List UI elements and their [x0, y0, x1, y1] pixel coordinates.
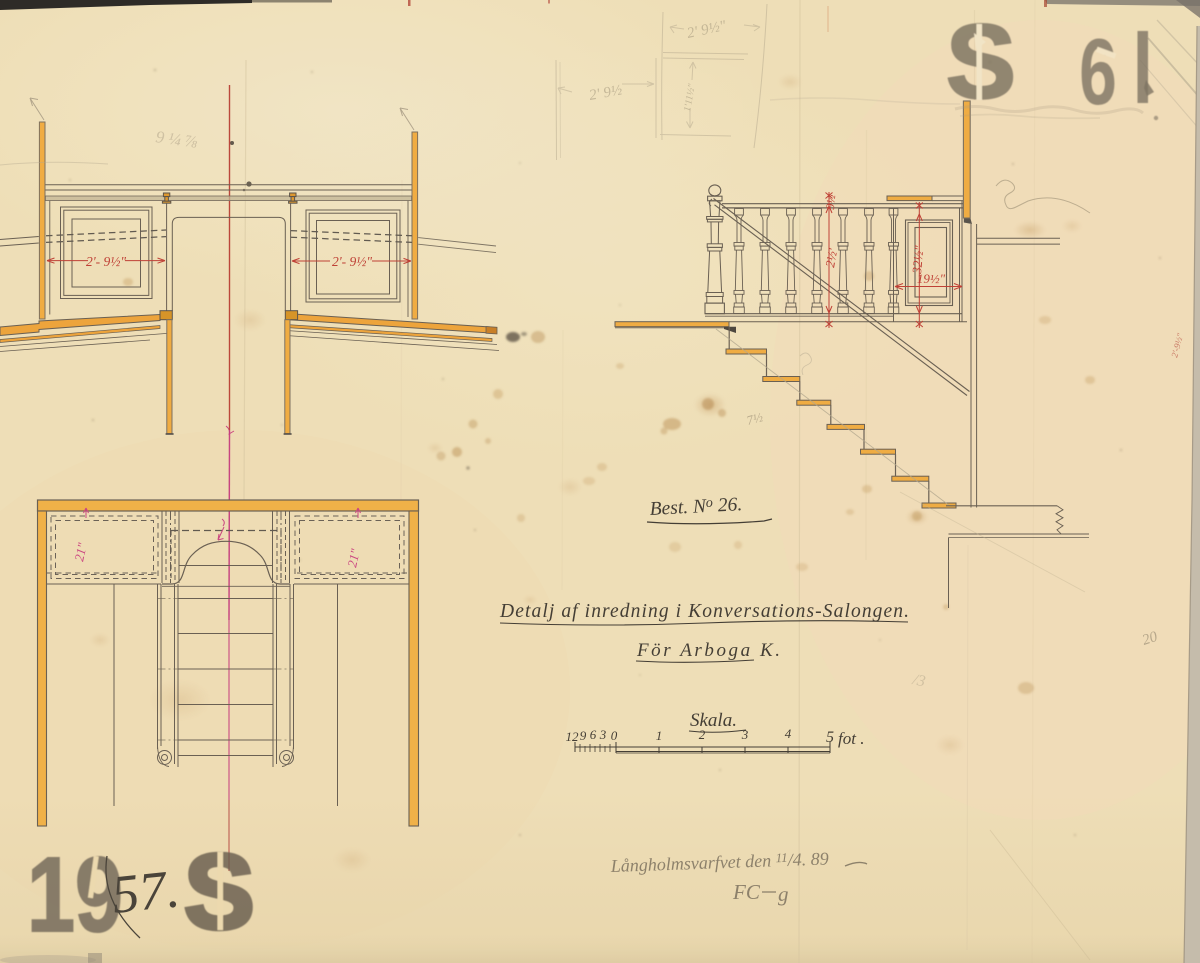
svg-text:2'- 9½": 2'- 9½": [332, 254, 372, 269]
svg-text:0: 0: [611, 728, 618, 743]
svg-text:2: 2: [699, 727, 706, 742]
svg-text:fot .: fot .: [838, 729, 864, 748]
svg-text:5: 5: [826, 729, 834, 746]
svg-text:Detalj af inredning i Konversa: Detalj af inredning i Konversations-Salo…: [499, 601, 909, 622]
svg-text:9: 9: [580, 728, 587, 743]
svg-text:FC: FC: [732, 880, 761, 904]
svg-text:19: 19: [27, 836, 123, 954]
svg-text:4: 4: [785, 726, 792, 741]
svg-text:6: 6: [590, 727, 597, 742]
svg-text:12: 12: [566, 729, 580, 744]
svg-text:19½": 19½": [917, 271, 946, 286]
svg-text:3: 3: [599, 727, 607, 742]
svg-text:9½: 9½: [823, 194, 838, 210]
svg-text:1: 1: [656, 728, 663, 743]
svg-text:3: 3: [741, 727, 749, 742]
svg-text:Skala.: Skala.: [690, 710, 737, 731]
svg-text:2'- 9½": 2'- 9½": [86, 254, 126, 269]
svg-text:g: g: [778, 882, 789, 906]
svg-text:9: 9: [1079, 19, 1117, 123]
